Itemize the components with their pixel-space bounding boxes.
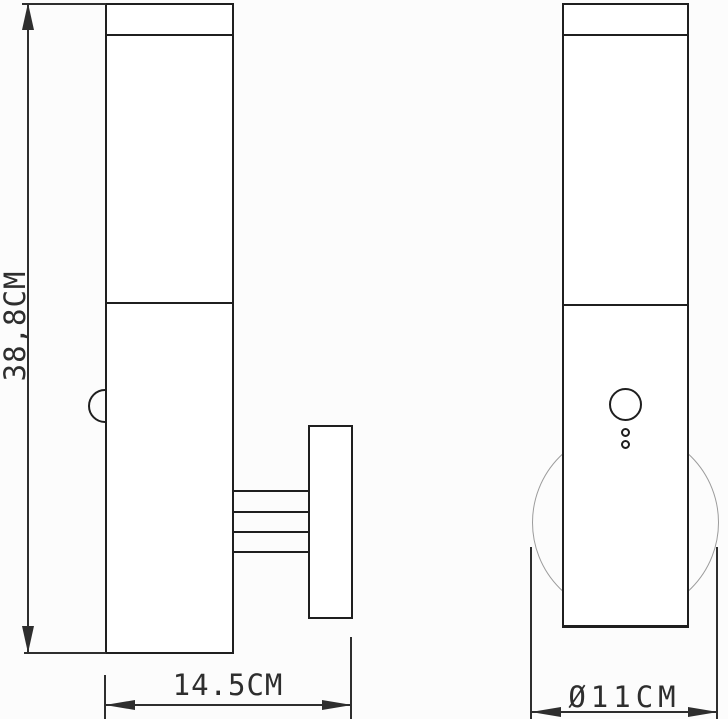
front-lamp-body <box>562 3 689 628</box>
front-top-cap-line <box>562 34 689 36</box>
diameter-dimension-label: Ø11CM <box>552 682 697 712</box>
mount-arm-line <box>233 511 310 513</box>
front-diffuser-seam-line <box>562 304 689 306</box>
height-dimension-label: 38,8CM <box>0 256 26 396</box>
wall-mount-plate <box>308 425 353 619</box>
diameter-extension-line-right <box>716 547 718 719</box>
sensor-bump-arc <box>88 389 105 423</box>
diameter-extension-line-left <box>530 547 532 719</box>
height-extension-line-top <box>22 3 106 5</box>
side-diffuser-seam-line <box>105 302 234 304</box>
arrow-right-icon <box>322 700 352 710</box>
depth-dimension-line <box>105 704 352 706</box>
mount-arm-line <box>233 551 310 553</box>
side-motion-sensor-bump <box>88 389 105 423</box>
mount-arm-line <box>233 531 310 533</box>
arrow-left-icon <box>105 700 135 710</box>
sensor-indicator-dot <box>621 428 630 437</box>
depth-extension-line-left <box>104 675 106 719</box>
arrow-down-icon <box>22 626 34 653</box>
side-lamp-body <box>105 3 234 654</box>
arrow-up-icon <box>22 3 34 30</box>
technical-drawing: 38,8CM 14.5CM Ø11CM <box>0 0 728 719</box>
side-top-cap-line <box>105 34 234 36</box>
depth-dimension-label: 14.5CM <box>158 670 298 700</box>
height-extension-line-bottom <box>24 652 106 654</box>
sensor-indicator-dot <box>621 440 630 449</box>
motion-sensor-circle <box>609 388 642 421</box>
mount-arm-line <box>233 490 310 492</box>
